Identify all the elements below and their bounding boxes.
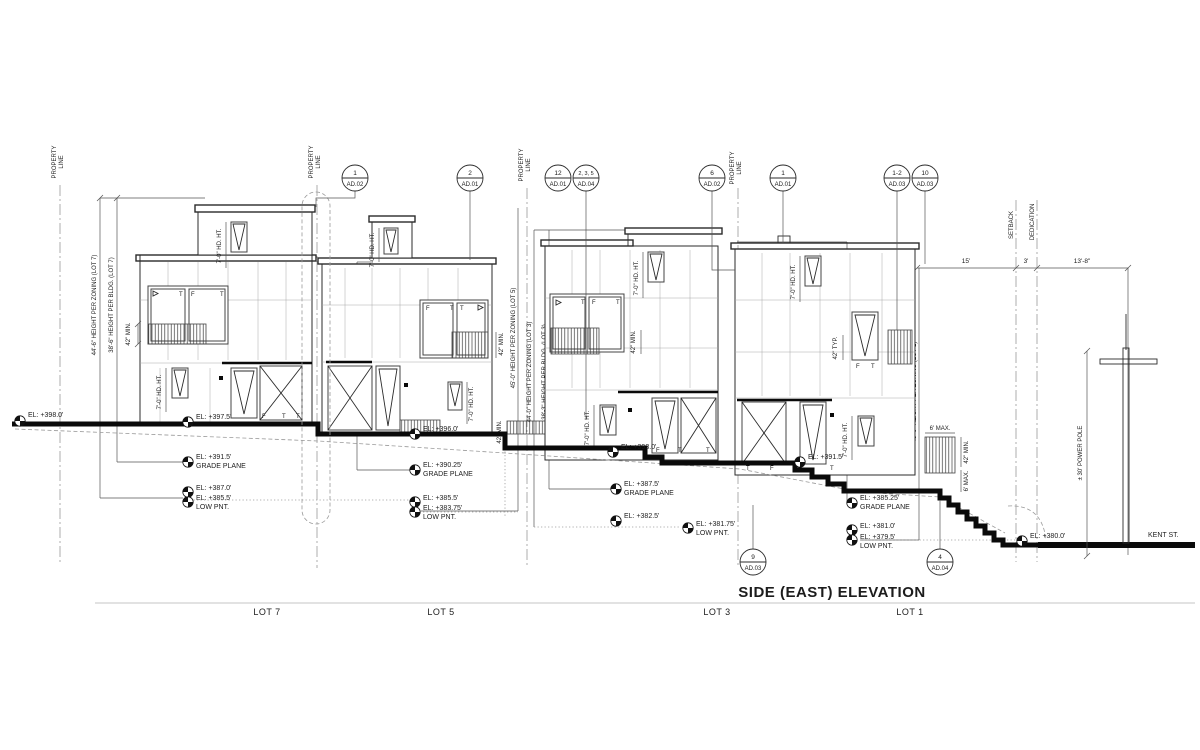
svg-text:12: 12 [554, 170, 562, 177]
building-lot3: T F T 42" MIN. 7'-0" HD. HT. 7'-0" HD. H… [541, 228, 722, 460]
setback-width-dim: 15' [962, 258, 970, 265]
svg-text:EL: +381.0': EL: +381.0' [860, 523, 895, 530]
svg-text:LINE: LINE [737, 161, 743, 174]
svg-text:AD.01: AD.01 [775, 182, 792, 188]
detail-bubble: 4AD.04 [927, 549, 953, 575]
railing [452, 332, 488, 358]
head-height-dim: 7'-0" HD. HT. [157, 374, 163, 409]
street-stair: 6' MAX. 42" MIN. 6' MAX. [925, 426, 970, 492]
svg-text:EL: +385.5': EL: +385.5' [196, 495, 231, 502]
detail-bubble: 9AD.03 [740, 549, 766, 575]
elevation-marker: EL: +385.25'GRADE PLANE [847, 495, 910, 511]
railing-dim: 42" MIN. [126, 322, 132, 345]
head-height-dim: 7'-0" HD. HT. [370, 232, 376, 267]
stair-dim: 6' MAX. [964, 470, 970, 491]
detail-bubble: 2, 3, 5AD.04 [573, 165, 599, 191]
svg-text:AD.03: AD.03 [917, 182, 934, 188]
svg-text:GRADE PLANE: GRADE PLANE [423, 471, 473, 478]
detail-bubble: 2AD.01 [457, 165, 483, 191]
setback-label: SETBACK [1009, 211, 1015, 239]
svg-text:GRADE PLANE: GRADE PLANE [624, 490, 674, 497]
lot7-label: LOT 7 [253, 607, 280, 617]
glass-mark: F [656, 448, 660, 454]
svg-text:PROPERTY: PROPERTY [52, 146, 58, 179]
glass-mark: T [296, 414, 300, 420]
elevation-marker: EL: +391.5'GRADE PLANE [183, 454, 246, 470]
detail-bubble: 1-2AD.03 [884, 165, 910, 191]
glass-mark: T [871, 364, 875, 370]
lot1-label: LOT 1 [896, 607, 923, 617]
svg-text:6: 6 [710, 170, 714, 177]
svg-text:PROPERTY: PROPERTY [309, 146, 315, 179]
glass-mark: T [830, 466, 834, 472]
svg-text:EL: +385.5': EL: +385.5' [423, 495, 458, 502]
detail-bubble: 10AD.03 [912, 165, 938, 191]
detail-bubble: 1AD.02 [342, 165, 368, 191]
svg-text:LOW PNT.: LOW PNT. [423, 514, 456, 521]
elevation-marker: EL: +390.25'GRADE PLANE [410, 462, 473, 478]
svg-text:10: 10 [921, 170, 929, 177]
svg-text:2, 3, 5: 2, 3, 5 [578, 171, 593, 177]
svg-text:EL: +385.25': EL: +385.25' [860, 495, 899, 502]
svg-text:AD.03: AD.03 [745, 566, 762, 572]
svg-text:GRADE PLANE: GRADE PLANE [860, 504, 910, 511]
glass-mark: F [426, 306, 430, 312]
glass-mark: T [220, 292, 224, 298]
property-line-label: PROPERTY LINE [309, 146, 322, 179]
railing [925, 437, 955, 473]
dedication-label: DEDICATION [1030, 204, 1036, 241]
svg-text:AD.01: AD.01 [462, 182, 479, 188]
svg-text:EL: +398.0': EL: +398.0' [28, 412, 63, 419]
svg-text:EL: +396.0': EL: +396.0' [423, 426, 458, 433]
svg-text:LOW PNT.: LOW PNT. [696, 530, 729, 537]
svg-text:AD.02: AD.02 [347, 182, 364, 188]
svg-text:9: 9 [751, 554, 755, 561]
property-line-label: PROPERTY LINE [730, 152, 743, 185]
lot7-zoning-height: 44'-6" HEIGHT PER ZONING (LOT 7) [92, 255, 98, 356]
elevation-marker: EL: +385.5'LOW PNT. [183, 495, 232, 511]
head-height-dim: 7'-0" HD. HT. [217, 228, 223, 263]
svg-text:LINE: LINE [316, 155, 322, 168]
svg-text:EL: +391.5': EL: +391.5' [196, 454, 231, 461]
head-height-dim: 7'-0" HD. HT. [791, 264, 797, 299]
street-width-dim: 13'-8" [1074, 258, 1091, 265]
railing [507, 421, 547, 434]
svg-text:PROPERTY: PROPERTY [730, 152, 736, 185]
elevation-marker: EL: +387.5'GRADE PLANE [611, 481, 674, 497]
lot7-bldg-height: 38'-6" HEIGHT PER BLDG. (LOT 7) [109, 257, 115, 352]
lot3-label: LOT 3 [703, 607, 730, 617]
svg-text:EL: +393.0': EL: +393.0' [621, 444, 656, 451]
svg-text:1-2: 1-2 [892, 170, 902, 177]
svg-text:4: 4 [938, 554, 942, 561]
glass-mark: T [179, 292, 183, 298]
railing [888, 330, 912, 364]
svg-text:EL: +397.5': EL: +397.5' [196, 414, 231, 421]
glass-mark: F [856, 364, 860, 370]
head-height-dim: 7'-0" HD. HT. [843, 422, 849, 457]
elevation-marker: EL: +382.5' [611, 513, 660, 526]
lot5-label: LOT 5 [427, 607, 454, 617]
glass-mark: T [450, 306, 454, 312]
svg-text:LOW PNT.: LOW PNT. [196, 504, 229, 511]
dedication-width-dim: 3' [1024, 258, 1029, 265]
svg-text:EL: +383.75': EL: +383.75' [423, 505, 462, 512]
glass-mark: T [460, 306, 464, 312]
glass-mark: T [282, 414, 286, 420]
svg-text:GRADE PLANE: GRADE PLANE [196, 463, 246, 470]
glass-mark: F [191, 292, 195, 298]
detail-bubble: 6AD.02 [699, 165, 725, 191]
svg-text:LINE: LINE [59, 155, 65, 168]
svg-text:1: 1 [781, 170, 785, 177]
svg-text:AD.03: AD.03 [889, 182, 906, 188]
svg-text:EL: +381.75': EL: +381.75' [696, 521, 735, 528]
svg-text:AD.04: AD.04 [932, 566, 949, 572]
railing [551, 328, 599, 354]
svg-text:EL: +379.5': EL: +379.5' [860, 534, 895, 541]
svg-text:2: 2 [468, 170, 472, 177]
railing-dim: 42" TYP. [833, 336, 839, 359]
glass-mark: T [616, 300, 620, 306]
svg-text:LOW PNT.: LOW PNT. [860, 543, 893, 550]
railing-dim: 42" MIN. [499, 332, 505, 355]
elevation-marker: EL: +383.75'LOW PNT. [410, 505, 462, 521]
svg-text:EL: +390.25': EL: +390.25' [423, 462, 462, 469]
railing-dim: 42" MIN. [631, 330, 637, 353]
property-line-label: PROPERTY LINE [519, 149, 532, 182]
lot3-zoning-height: 44'-0" HEIGHT PER ZONING (LOT 3) [527, 322, 533, 423]
svg-text:EL: +391.5': EL: +391.5' [808, 454, 843, 461]
glass-mark: T [706, 448, 710, 454]
svg-text:EL: +382.5': EL: +382.5' [624, 513, 659, 520]
glass-mark: T [678, 448, 682, 454]
svg-text:EL: +387.0': EL: +387.0' [196, 485, 231, 492]
detail-bubble: 1AD.01 [770, 165, 796, 191]
svg-text:PROPERTY: PROPERTY [519, 149, 525, 182]
elevation-marker: EL: +379.5'LOW PNT. [847, 534, 896, 550]
head-height-dim: 7'-0" HD. HT. [634, 260, 640, 295]
stair-dim: 6' MAX. [930, 426, 951, 432]
building-lot1: 7'-0" HD. HT. F T 42" TYP. 7'-0" HD. HT.… [731, 236, 919, 475]
property-line-label: PROPERTY LINE [52, 146, 65, 179]
drawing-title: SIDE (EAST) ELEVATION [738, 584, 925, 601]
svg-text:EL: +380.0': EL: +380.0' [1030, 533, 1065, 540]
street-dimensions: 15' 3' 13'-8" [914, 258, 1131, 555]
glass-mark: T [581, 300, 585, 306]
glass-mark: F [262, 414, 266, 420]
railing [148, 324, 206, 344]
street-pavement [1038, 542, 1195, 548]
stair-dim: 42" MIN. [964, 440, 970, 463]
street-label: KENT ST. [1148, 532, 1179, 539]
detail-bubble: 12AD.01 [545, 165, 571, 191]
svg-text:AD.02: AD.02 [704, 182, 721, 188]
elevation-drawing: PROPERTY LINE PROPERTY LINE PROPERTY LIN… [0, 0, 1200, 750]
power-pole: ± 30' POWER POLE [1078, 314, 1157, 559]
svg-text:AD.04: AD.04 [578, 182, 595, 188]
glass-mark: F [592, 300, 596, 306]
svg-text:1: 1 [353, 170, 357, 177]
head-height-dim: 7'-0" HD. HT. [469, 386, 475, 421]
glass-mark: F [770, 466, 774, 472]
lot5-zoning-height: 45'-0" HEIGHT PER ZONING (LOT 5) [511, 288, 517, 389]
svg-text:LINE: LINE [526, 158, 532, 171]
svg-text:EL: +387.5': EL: +387.5' [624, 481, 659, 488]
title-block: SIDE (EAST) ELEVATION LOT 7 LOT 5 LOT 3 … [95, 584, 1195, 617]
svg-text:AD.01: AD.01 [550, 182, 567, 188]
building-lot7: T F T 42" MIN. 7'-0" HD. HT. 7'-0" HD. H… [126, 205, 316, 425]
elevation-marker: EL: +381.75'LOW PNT. [683, 521, 735, 537]
power-pole-label: ± 30' POWER POLE [1078, 426, 1084, 481]
